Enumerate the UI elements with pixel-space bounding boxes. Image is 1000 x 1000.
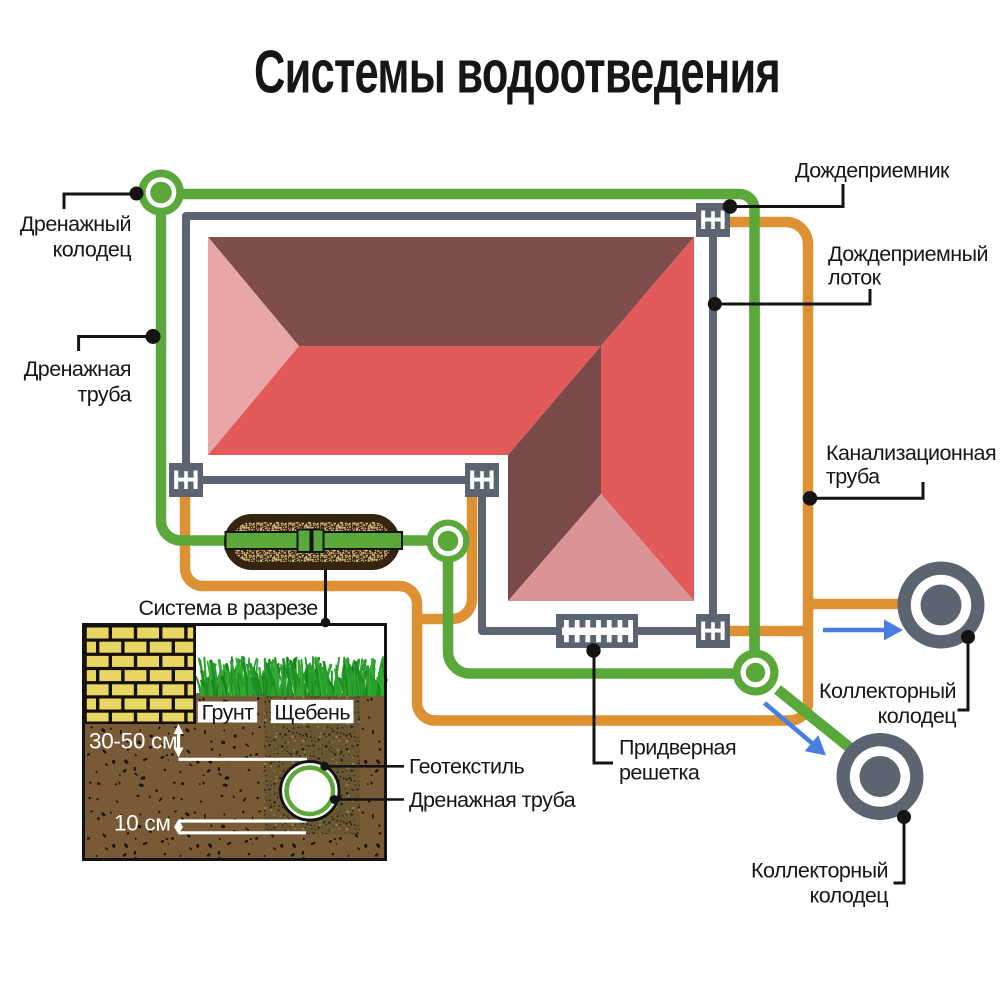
svg-text:30-50 см: 30-50 см [89,729,177,754]
svg-text:Геотекстиль: Геотекстиль [409,755,525,779]
svg-text:10 см: 10 см [114,811,171,836]
svg-text:Щебень: Щебень [274,701,350,725]
svg-text:Дренажный: Дренажный [20,212,131,236]
svg-text:труба: труба [77,383,131,407]
svg-text:труба: труба [826,465,880,489]
svg-text:Дренажная: Дренажная [24,357,131,381]
svg-text:лоток: лоток [828,266,882,290]
svg-text:Дренажная труба: Дренажная труба [409,788,576,812]
svg-text:Системы водоотведения: Системы водоотведения [254,39,780,106]
svg-text:колодец: колодец [53,238,132,262]
svg-text:Дождеприемный: Дождеприемный [828,242,988,266]
svg-text:колодец: колодец [810,884,889,908]
svg-text:решетка: решетка [619,761,700,785]
svg-text:Придверная: Придверная [619,736,736,760]
svg-text:Коллекторный: Коллекторный [819,679,956,703]
svg-text:Система в разрезе: Система в разрезе [139,596,318,620]
svg-text:Канализационная: Канализационная [826,441,996,465]
svg-text:Дождеприемник: Дождеприемник [795,159,950,183]
svg-text:Грунт: Грунт [202,701,255,725]
svg-text:колодец: колодец [878,704,957,728]
svg-text:Коллекторный: Коллекторный [751,859,888,883]
